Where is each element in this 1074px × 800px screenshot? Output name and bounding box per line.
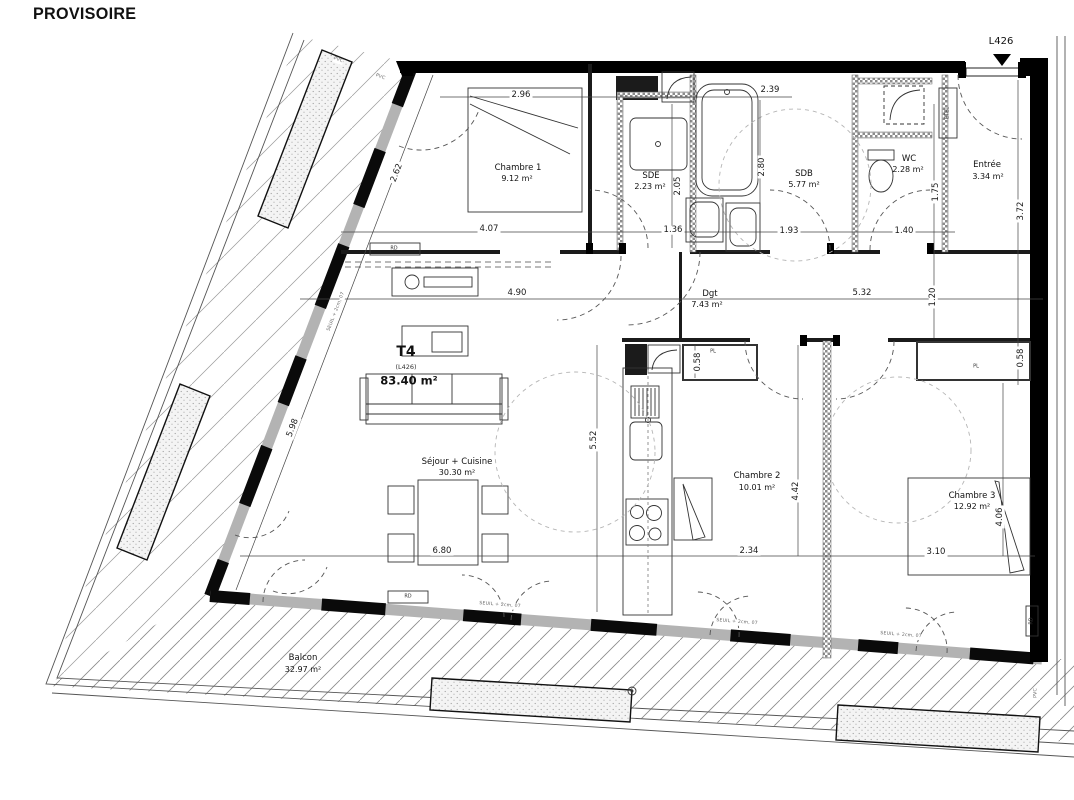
dim-sde-height: 2.05 [674, 175, 683, 198]
room-entree-name: Entrée [973, 161, 1001, 170]
wet-walls [617, 75, 948, 658]
bedroom-divider-wall [823, 341, 831, 658]
dim-sdb-bottom: 1.93 [778, 227, 801, 236]
dim-chambre2-height: 4.42 [792, 480, 801, 503]
dim-chambre3-width: 3.10 [925, 548, 948, 557]
bed-chambre2 [674, 478, 712, 540]
room-sejour-name: Séjour + Cuisine [422, 458, 493, 467]
stove [626, 499, 668, 545]
entry-door-swing [958, 75, 1022, 139]
unit-entry-arrow [993, 54, 1011, 66]
unit-ref-label: L426 [989, 37, 1014, 47]
water-heater-icon [884, 86, 924, 124]
room-chambre3-area: 12.92 m² [954, 503, 990, 511]
door-hinges [586, 243, 934, 346]
dim-sejour-top: 4.90 [506, 289, 529, 298]
page-title: PROVISOIRE [33, 4, 136, 24]
radiator-label-1: RD [390, 247, 397, 252]
closet-walls [683, 342, 1030, 380]
console [392, 268, 478, 296]
room-sde-area: 2.23 m² [634, 183, 665, 191]
dim-dgt-height: 1.20 [929, 286, 938, 309]
room-chambre3-name: Chambre 3 [949, 492, 996, 501]
unit-type-ref: (L426) [395, 364, 416, 371]
floorplan-drawing [0, 0, 1074, 800]
unit-type: T4 [396, 345, 415, 359]
dim-chambre1-bottom: 4.07 [478, 225, 501, 234]
kitchen-unit [623, 368, 672, 615]
room-entree-area: 3.34 m² [972, 173, 1003, 181]
room-sde-name: SDE [642, 172, 659, 181]
toilet [868, 150, 894, 192]
dim-wc-bottom: 1.40 [893, 227, 916, 236]
unit-area: 83.40 m² [380, 375, 437, 387]
dim-sdb-height: 2.80 [758, 156, 767, 179]
room-wc-area: 2.28 m² [892, 166, 923, 174]
dim-chambre1-top: 2.96 [510, 91, 533, 100]
room-balcon-area: 32.97 m² [285, 666, 321, 674]
room-chambre1-name: Chambre 1 [495, 164, 542, 173]
dim-sdb-top: 2.39 [759, 86, 782, 95]
dim-entree-height: 3.72 [1017, 200, 1026, 223]
room-sdb-area: 5.77 m² [788, 181, 819, 189]
entry-door-leaf [966, 68, 1020, 76]
room-dgt-name: Dgt [702, 290, 717, 299]
dim-wc-height: 1.75 [932, 181, 941, 204]
top-wall [400, 61, 965, 73]
room-chambre2-area: 10.01 m² [739, 484, 775, 492]
closet-label-1: PL [710, 350, 716, 355]
room-balcon-name: Balcon [289, 654, 318, 663]
dim-placard-right: 0.58 [1017, 347, 1026, 370]
electrical-panel-label: ETEL [946, 107, 951, 119]
pvc-label-3: PVC [1035, 688, 1040, 698]
fixtures [360, 72, 1038, 695]
kitchen-sink [630, 422, 662, 460]
room-sejour-area: 30.30 m² [439, 469, 475, 477]
room-dgt-area: 7.43 m² [691, 301, 722, 309]
bathtub [696, 84, 758, 196]
room-chambre1-area: 9.12 m² [501, 175, 532, 183]
bed-chambre1 [468, 88, 582, 212]
washbasins [686, 198, 760, 251]
dim-placard-mid: 0.58 [694, 351, 703, 374]
right-wall [1030, 63, 1048, 662]
closet-right [917, 342, 1030, 380]
dim-sde-width: 1.36 [662, 226, 685, 235]
dim-sejour-width: 6.80 [431, 547, 454, 556]
dim-chambre3-height: 4.06 [996, 506, 1005, 529]
floorplan-canvas: PROVISOIRE L426 T4 (L426) 83.40 m² Chamb… [0, 0, 1074, 800]
radiator-label-3: RD [1030, 617, 1035, 624]
corner-shelf-icon [648, 72, 694, 373]
room-chambre2-name: Chambre 2 [734, 472, 781, 481]
dim-kitchen-height: 5.52 [590, 429, 599, 452]
shaft-black [625, 344, 647, 375]
room-wc-name: WC [902, 155, 916, 164]
closet-label-2: PL [973, 365, 979, 370]
dim-dgt-width: 5.32 [851, 289, 874, 298]
shower [630, 118, 687, 170]
interior-walls [341, 64, 1030, 375]
dim-chambre2-width: 2.34 [738, 547, 761, 556]
room-sdb-name: SDB [795, 170, 813, 179]
radiator-label-2: RD [404, 595, 411, 600]
